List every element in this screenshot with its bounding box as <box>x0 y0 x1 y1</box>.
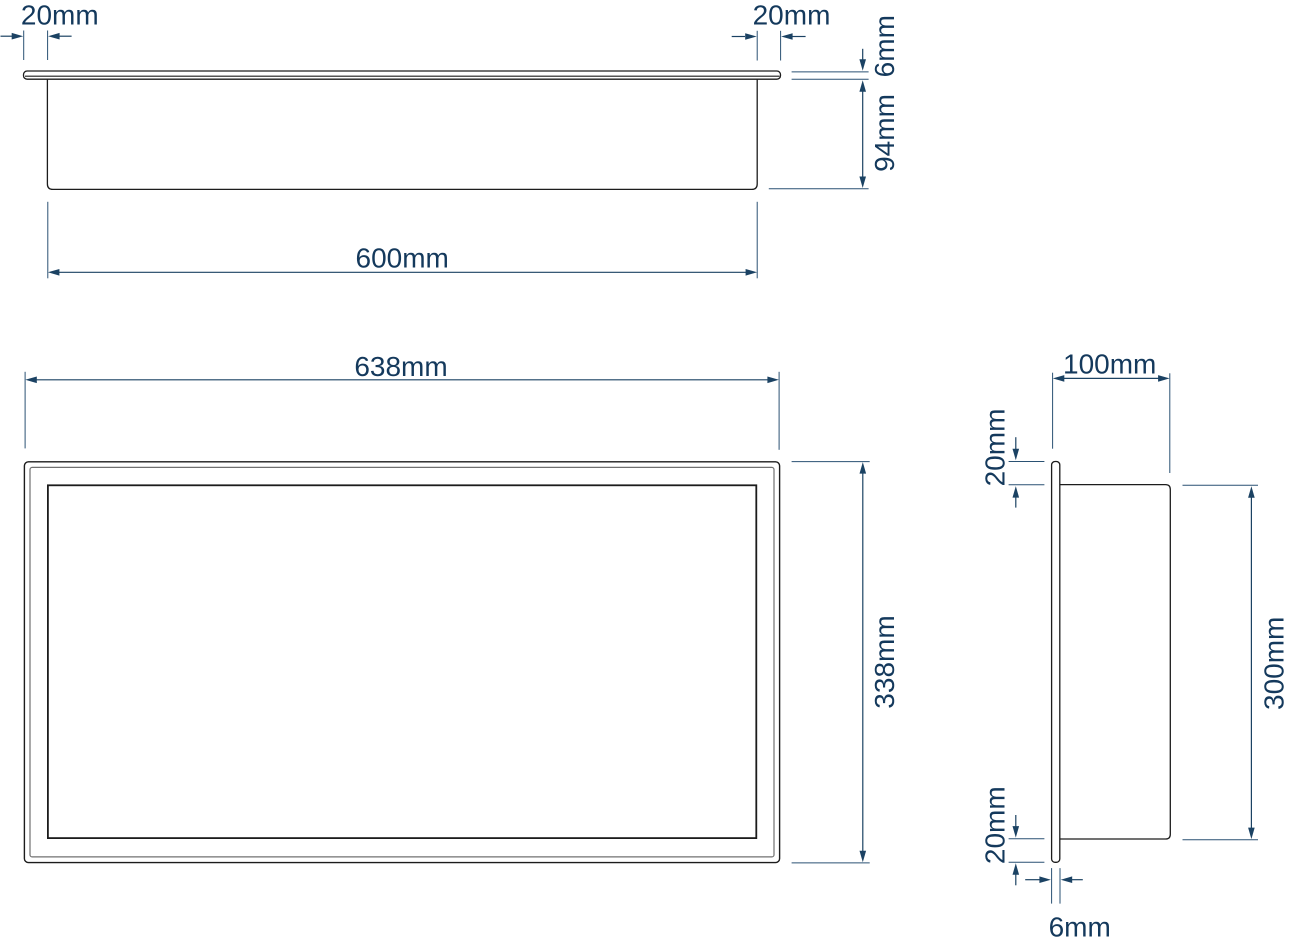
svg-text:20mm: 20mm <box>980 409 1011 487</box>
svg-text:20mm: 20mm <box>753 0 831 31</box>
svg-text:94mm: 94mm <box>869 94 900 172</box>
svg-text:20mm: 20mm <box>21 0 99 31</box>
svg-text:100mm: 100mm <box>1063 348 1156 379</box>
svg-text:638mm: 638mm <box>354 351 447 382</box>
svg-text:20mm: 20mm <box>980 786 1011 864</box>
svg-text:600mm: 600mm <box>356 243 449 274</box>
svg-text:6mm: 6mm <box>1049 911 1111 942</box>
svg-text:6mm: 6mm <box>869 15 900 77</box>
svg-text:300mm: 300mm <box>1258 617 1289 710</box>
svg-text:338mm: 338mm <box>869 615 900 708</box>
